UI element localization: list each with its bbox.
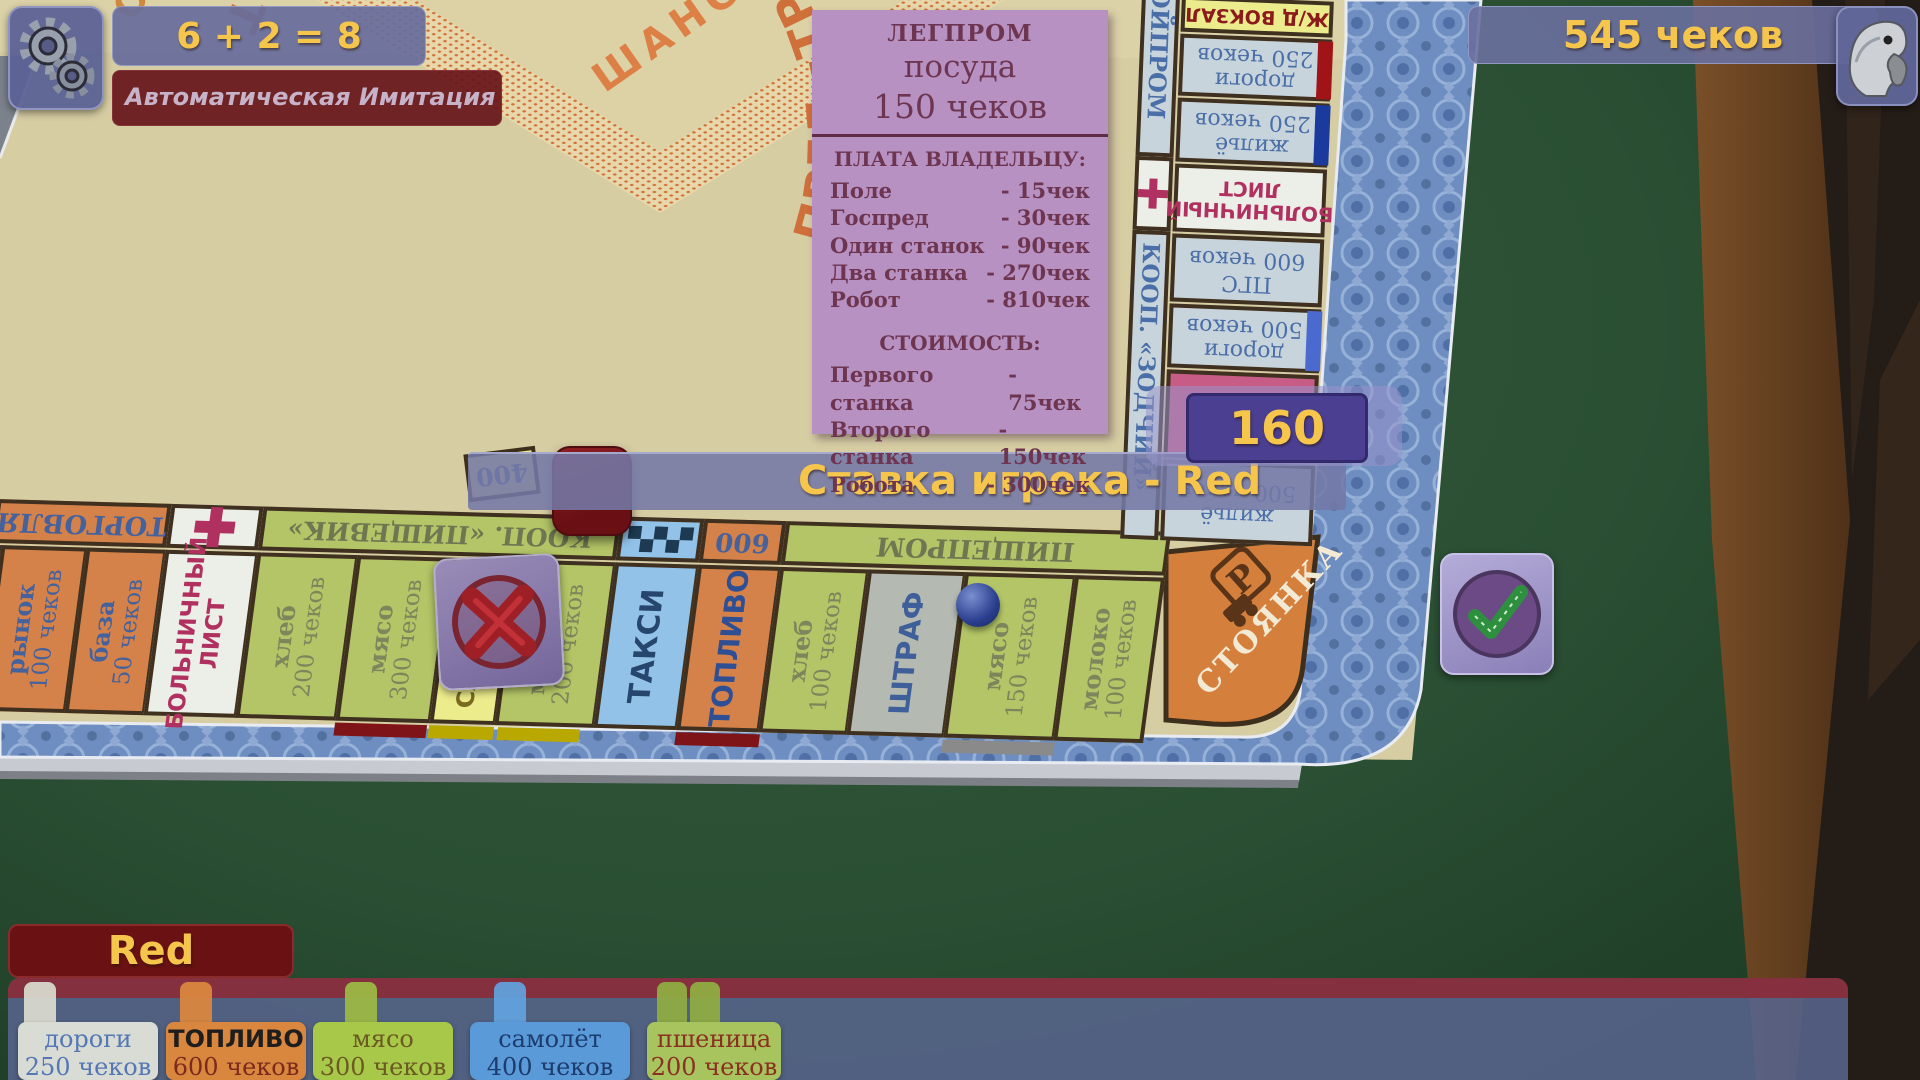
- player-name-plate: Red: [8, 924, 294, 978]
- card-row-label: Госпред: [830, 204, 929, 231]
- board-cell-dorogi250[interactable]: дороги250 чеков: [1178, 34, 1332, 102]
- owner-marker-yellow: [427, 725, 494, 740]
- hand-card-pshenitsa[interactable]: пшеница200 чеков: [647, 1022, 781, 1080]
- card-name: посуда: [830, 49, 1090, 85]
- header-stroyprom: СТРОЙПРОМ: [1135, 0, 1179, 157]
- player-avatar-button[interactable]: [1836, 6, 1918, 106]
- hand-card-dorogi[interactable]: дороги250 чеков: [18, 1022, 158, 1080]
- hand-card-samolyot[interactable]: самолёт400 чеков: [470, 1022, 630, 1080]
- property-card: ЛЕГПРОМ посуда 150 чеков ПЛАТА ВЛАДЕЛЬЦУ…: [812, 10, 1108, 434]
- board-cell-dorogi500[interactable]: дороги500 чеков: [1167, 303, 1321, 373]
- card-cost-header: СТОИМОСТЬ:: [830, 331, 1090, 355]
- owner-marker-grey: [941, 740, 1055, 756]
- taxi-checker-icon: [625, 526, 694, 554]
- card-row-label: Робот: [830, 286, 901, 313]
- owner-marker-blue: [1305, 311, 1322, 372]
- card-row-value: - 90чек: [1001, 232, 1090, 259]
- header-koop-label: КООП. «ПИЩЕВИК»: [285, 515, 593, 552]
- header-torgovlya: ТОРГОВЛЯ: [0, 499, 172, 548]
- money-bar: 545 чеков: [1468, 6, 1878, 64]
- board-cell-zhilyo250[interactable]: жильё250 чеков: [1175, 98, 1329, 168]
- confirm-button[interactable]: [1440, 553, 1554, 675]
- confirm-check-icon: [1449, 566, 1545, 662]
- eagle-icon: [1842, 12, 1912, 100]
- gear-icon: [14, 12, 98, 104]
- card-row-value: - 75чек: [1008, 361, 1090, 416]
- status-bar: Автоматическая Имитация Игрока...: [112, 70, 502, 126]
- status-text: Автоматическая Имитация Игрока...: [113, 71, 501, 111]
- owner-marker-red: [333, 723, 427, 739]
- header-stroyprom-label: СТРОЙПРОМ: [1141, 0, 1177, 120]
- dice-result: 6 + 2 = 8: [176, 16, 362, 57]
- hand-card-myaso[interactable]: мясо300 чеков: [313, 1022, 453, 1080]
- cancel-button[interactable]: [433, 553, 566, 691]
- card-row-value: - 30чек: [1001, 204, 1090, 231]
- settings-button[interactable]: [8, 6, 104, 110]
- card-pay-header: ПЛАТА ВЛАДЕЛЬЦУ:: [830, 147, 1090, 171]
- bet-value-box: 160: [1186, 393, 1368, 463]
- medical-cross-icon: [1137, 178, 1168, 209]
- game-screen: ШАНС ОН ПРЕД=ТРЕСТ * КООП+ГОСПРЕД=ТРЕСТ …: [0, 0, 1920, 1080]
- header-pischeprom: ПИЩЕПРОМ: [781, 521, 1172, 576]
- board-cell-railstation[interactable]: Ж/Д ВОКЗАЛ: [1181, 0, 1334, 38]
- board-cell-bolnichny-right[interactable]: БОЛЬНИЧНЫЙЛИСТ: [1172, 163, 1327, 237]
- hand-panel-stripe: [8, 978, 1848, 998]
- header-600-label: 600: [713, 526, 771, 557]
- board-cell-pgs[interactable]: ПГС600 чеков: [1170, 233, 1325, 307]
- card-row-value: - 15чек: [1001, 177, 1090, 204]
- hand-card-toplivo[interactable]: ТОПЛИВО 600 чеков: [166, 1022, 306, 1080]
- card-price: 150 чеков: [830, 87, 1090, 126]
- card-row-value: - 150чек: [999, 416, 1090, 471]
- bet-value: 160: [1229, 401, 1325, 455]
- card-group: ЛЕГПРОМ: [830, 20, 1090, 47]
- header-600: 600: [699, 519, 787, 565]
- header-torgovlya-label: ТОРГОВЛЯ: [0, 506, 169, 541]
- card-row-value: - 810чек: [986, 286, 1090, 313]
- player-name: Red: [108, 928, 195, 974]
- player-token-blue: [956, 583, 1000, 627]
- owner-marker-yellow: [496, 727, 580, 742]
- dice-result-bar: 6 + 2 = 8: [112, 6, 426, 66]
- card-row-label: Второго станка: [830, 416, 999, 471]
- bet-value-panel: 160: [1146, 386, 1402, 466]
- money-value: 545 чеков: [1563, 13, 1783, 57]
- header-pischeprom-label: ПИЩЕПРОМ: [875, 531, 1077, 566]
- card-row-label: Два станка: [830, 259, 968, 286]
- cancel-x-icon: [444, 567, 553, 676]
- card-row-label: Робота: [830, 471, 914, 498]
- owner-marker-red: [674, 732, 760, 747]
- card-row-value: - 270чек: [986, 259, 1090, 286]
- card-row-label: Поле: [830, 177, 892, 204]
- owner-marker-red: [1316, 41, 1333, 100]
- card-row-label: Один станок: [830, 232, 985, 259]
- card-row-label: Первого станка: [830, 361, 1008, 416]
- owner-marker-blue: [1313, 105, 1330, 166]
- board-bottom-row: ТОРГОВЛЯ КООП. «ПИЩЕВИК» 600 ПИЩЕПРОМ ры…: [0, 497, 1178, 759]
- card-row-value: - 300чек: [986, 471, 1090, 498]
